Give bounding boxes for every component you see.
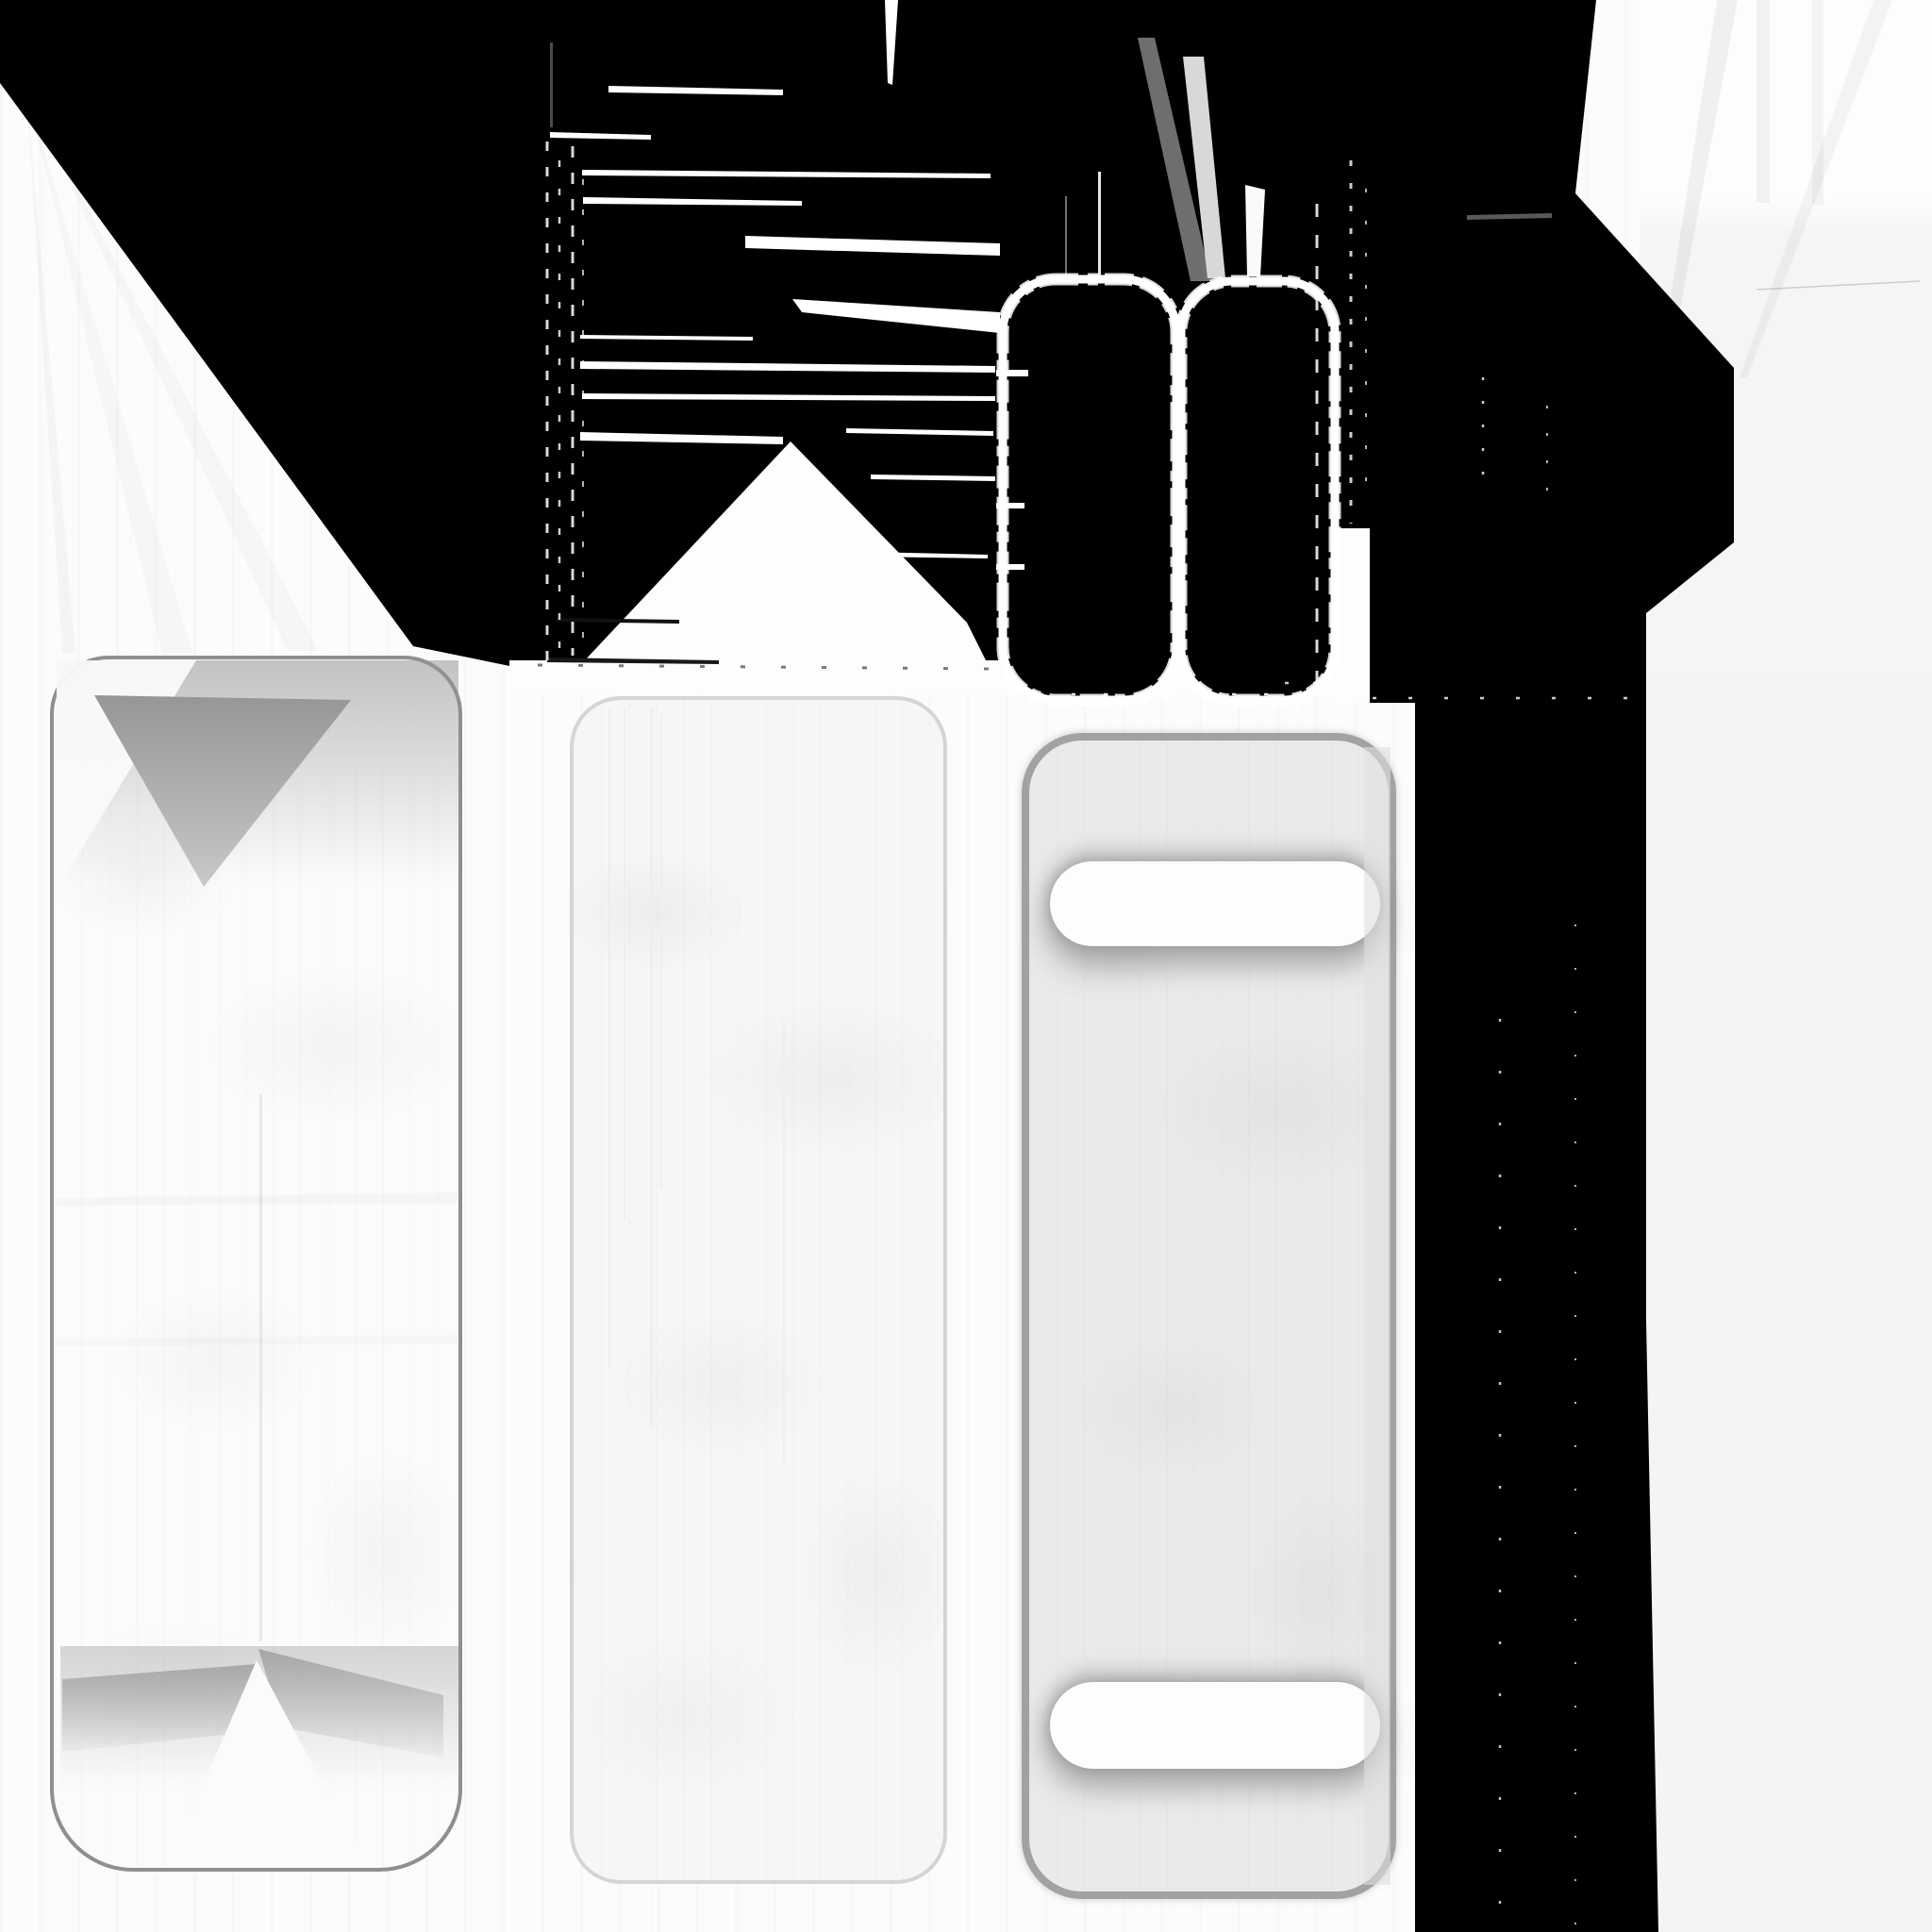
scratch-column-dark-segment: [550, 42, 553, 127]
mid-panel-streak-1: [608, 709, 610, 1370]
topright-streak-1: [1757, 0, 1770, 203]
pill1-left-stub-3: [996, 564, 1024, 570]
black-band-mid: [1370, 536, 1734, 703]
crown-vline-gray: [1065, 196, 1067, 277]
left-panel-faint-hline-1: [57, 1192, 458, 1206]
glitch-texture-sheet: [0, 0, 1932, 1932]
mid-panel-streak-4: [660, 717, 662, 1189]
pill-silhouette-2: [1181, 281, 1335, 700]
mid-panel-streak-3: [650, 709, 653, 1426]
pill-silhouette-1: [1003, 279, 1176, 700]
glitch-shapes-svg: [0, 0, 1932, 1932]
left-panel-fold-line: [259, 1094, 262, 1641]
mid-panel-streak-5: [783, 1019, 785, 1462]
crown-vline-white: [1098, 172, 1101, 279]
black-band-lower: [1415, 703, 1658, 1932]
right-panel-inner-shade-column: [1364, 747, 1391, 1885]
pill1-left-stub-2: [996, 503, 1024, 508]
mid-panel-streak-2: [624, 709, 625, 1219]
pill1-left-stub-1: [996, 370, 1028, 376]
left-panel-faint-hline-2: [57, 1335, 458, 1346]
glitch-shape-group: [0, 0, 1920, 1932]
